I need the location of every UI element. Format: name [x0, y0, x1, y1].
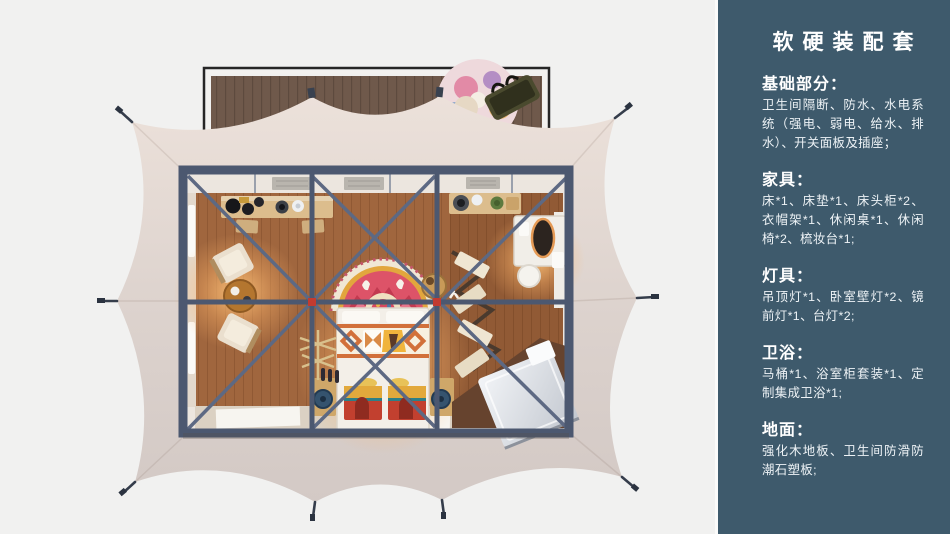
section-basics-body: 卫生间隔断、防水、水电系统（强电、弱电、给水、排水）、开关面板及插座； — [762, 96, 924, 153]
section-furniture: 家具： 床*1、床垫*1、床头柜*2、衣帽架*1、休闲桌*1、休闲椅*2、梳妆台… — [762, 170, 924, 249]
section-furniture-title: 家具： — [762, 170, 924, 192]
section-lighting-title: 灯具： — [762, 266, 924, 288]
section-basics: 基础部分： 卫生间隔断、防水、水电系统（强电、弱电、给水、排水）、开关面板及插座… — [762, 74, 924, 153]
bottle-set — [321, 368, 339, 383]
section-floor-body: 强化木地板、卫生间防滑防潮石塑板; — [762, 442, 924, 480]
tent-topview-render — [0, 0, 715, 534]
slide: 软硬装配套 基础部分： 卫生间隔断、防水、水电系统（强电、弱电、给水、排水）、开… — [0, 0, 950, 534]
tea-console — [449, 193, 521, 214]
section-floor-title: 地面： — [762, 420, 924, 442]
section-bath: 卫浴： 马桶*1、浴室柜套装*1、定制集成卫浴*1; — [762, 343, 924, 403]
cabin-room — [173, 170, 585, 454]
sidebar-title: 软硬装配套 — [762, 26, 924, 56]
package-sidebar: 软硬装配套 基础部分： 卫生间隔断、防水、水电系统（强电、弱电、给水、排水）、开… — [715, 0, 950, 534]
door-mat-left — [216, 407, 301, 429]
section-lighting: 灯具： 吊顶灯*1、卧室壁灯*2、镜前灯*1、台灯*2; — [762, 266, 924, 326]
section-bath-title: 卫浴： — [762, 343, 924, 365]
section-basics-title: 基础部分： — [762, 74, 924, 96]
tent-render-canvas — [0, 0, 715, 534]
section-furniture-body: 床*1、床垫*1、床头柜*2、衣帽架*1、休闲桌*1、休闲椅*2、梳妆台*1; — [762, 192, 924, 249]
section-lighting-body: 吊顶灯*1、卧室壁灯*2、镜前灯*1、台灯*2; — [762, 288, 924, 326]
section-floor: 地面： 强化木地板、卫生间防滑防潮石塑板; — [762, 420, 924, 480]
section-bath-body: 马桶*1、浴室柜套装*1、定制集成卫浴*1; — [762, 365, 924, 403]
